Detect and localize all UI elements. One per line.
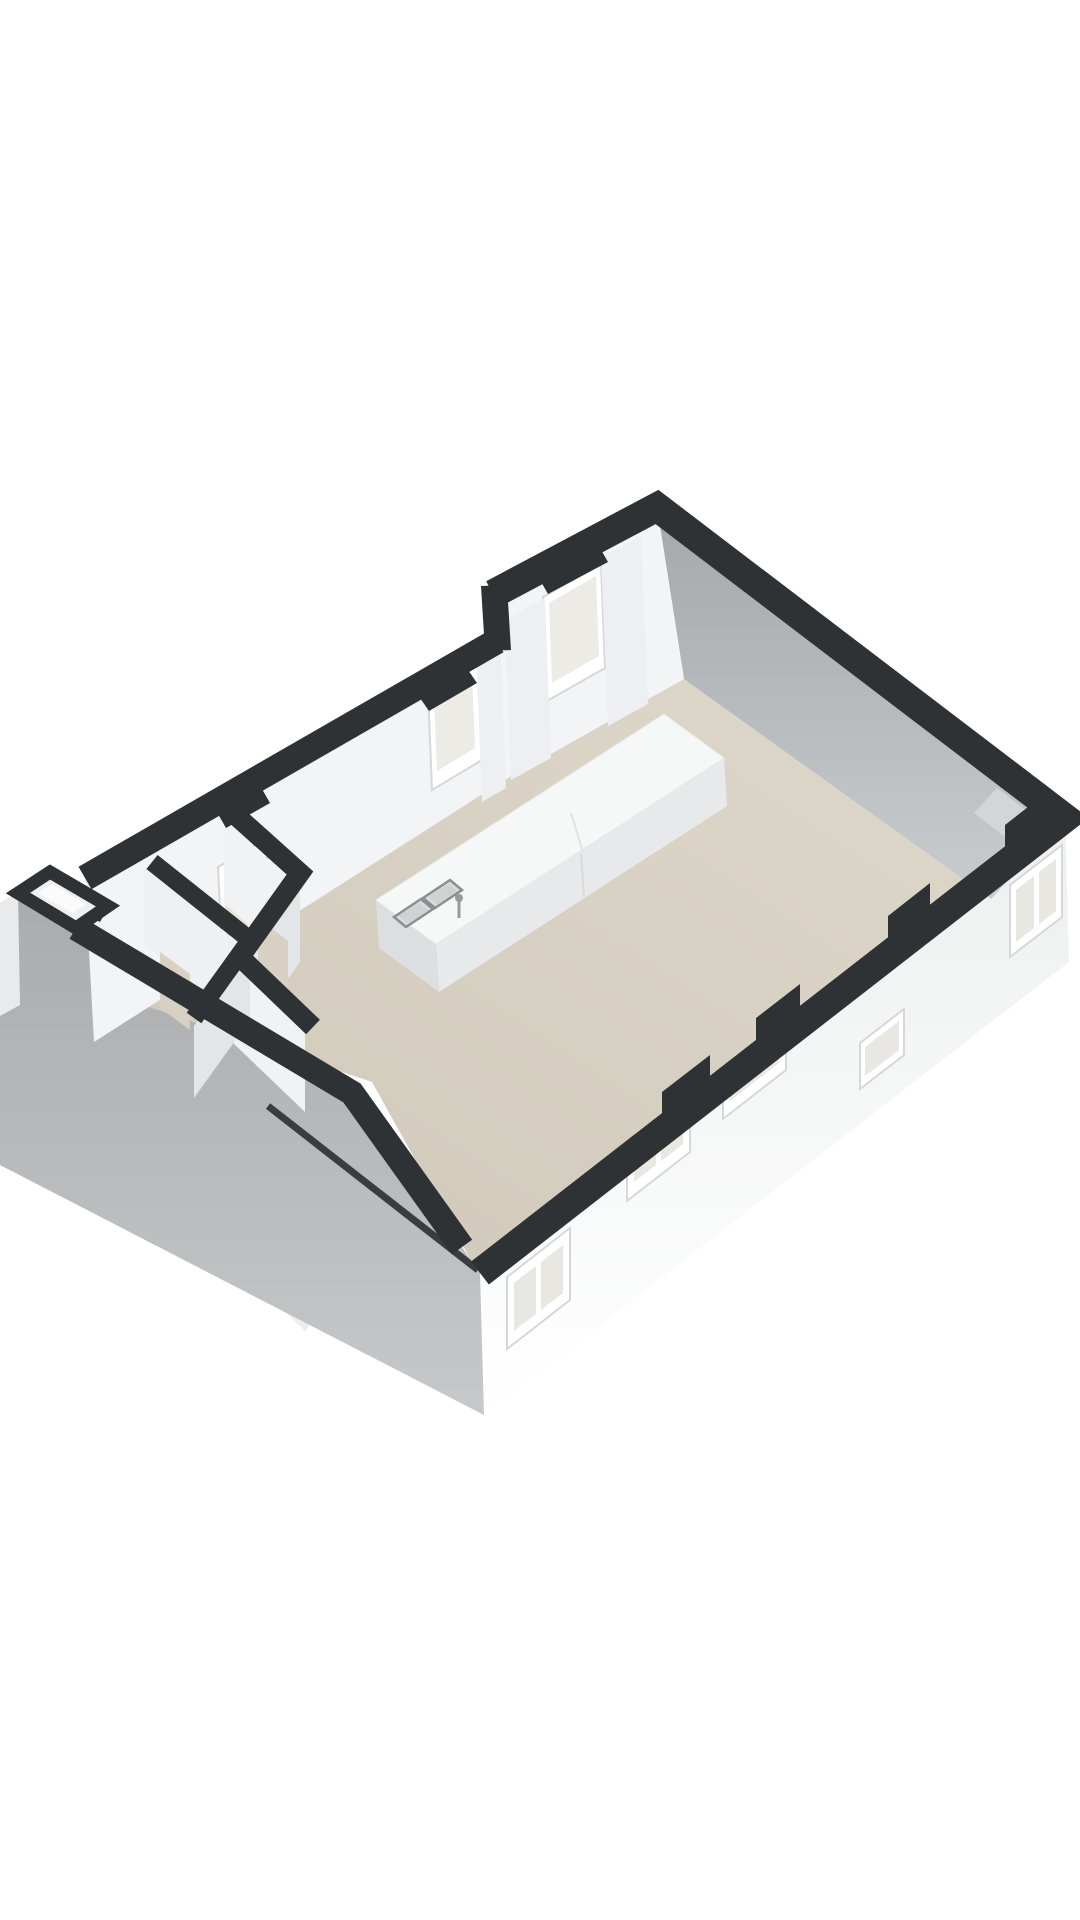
- window-se-5-mullion: [1034, 872, 1039, 932]
- floorplan-3d-render: [0, 0, 1080, 1920]
- floorplan-page: [0, 0, 1080, 1920]
- sink-faucet-head: [455, 894, 463, 902]
- floorplan-svg: [0, 0, 1080, 1920]
- window-se-1-mullion: [536, 1259, 541, 1318]
- sw-wall-west-sliver: [0, 893, 20, 1016]
- window-reveal-pillar-left: [505, 598, 551, 780]
- window-reveal-pillar-right: [601, 536, 648, 726]
